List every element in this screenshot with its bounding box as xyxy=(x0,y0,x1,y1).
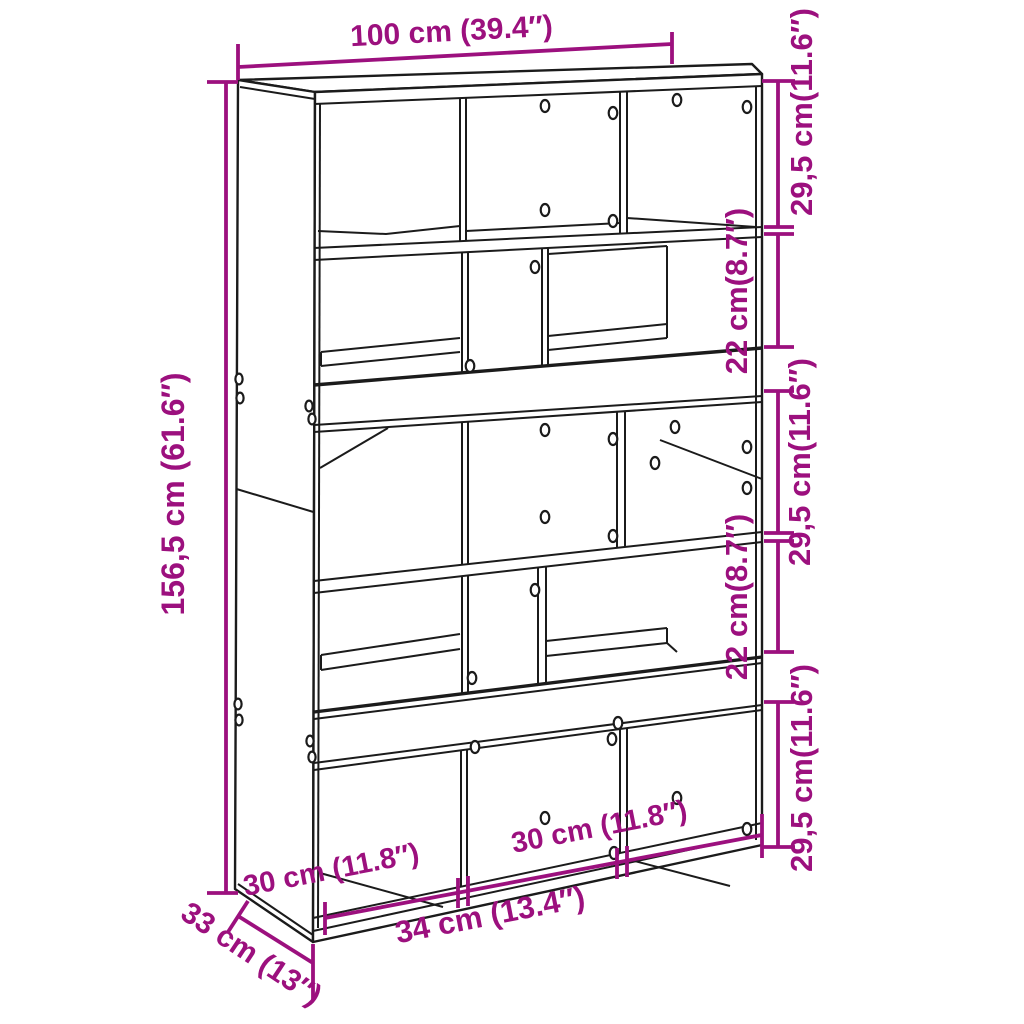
dim-height-label: 156,5 cm (61.6″) xyxy=(155,372,191,615)
left-side-face xyxy=(235,80,315,942)
furniture-dimension-diagram: 100 cm (39.4″) 156,5 cm (61.6″) 29,5 cm(… xyxy=(0,0,1024,1024)
dimension-diagram-canvas: 100 cm (39.4″) 156,5 cm (61.6″) 29,5 cm(… xyxy=(0,0,1024,1024)
dim-right-section-4-label: 22 cm(8.7″) xyxy=(719,514,754,681)
dim-right-section-3-label: 29,5 cm(11.6″) xyxy=(782,358,817,566)
front-face xyxy=(313,74,762,942)
dim-right-section-2-label: 22 cm(8.7″) xyxy=(719,208,754,375)
dim-height: 156,5 cm (61.6″) xyxy=(155,82,238,893)
dim-right-section-5-label: 29,5 cm(11.6″) xyxy=(784,664,819,872)
dim-width-label: 100 cm (39.4″) xyxy=(349,10,553,54)
dim-right-section-1-label: 29,5 cm(11.6″) xyxy=(784,8,819,216)
